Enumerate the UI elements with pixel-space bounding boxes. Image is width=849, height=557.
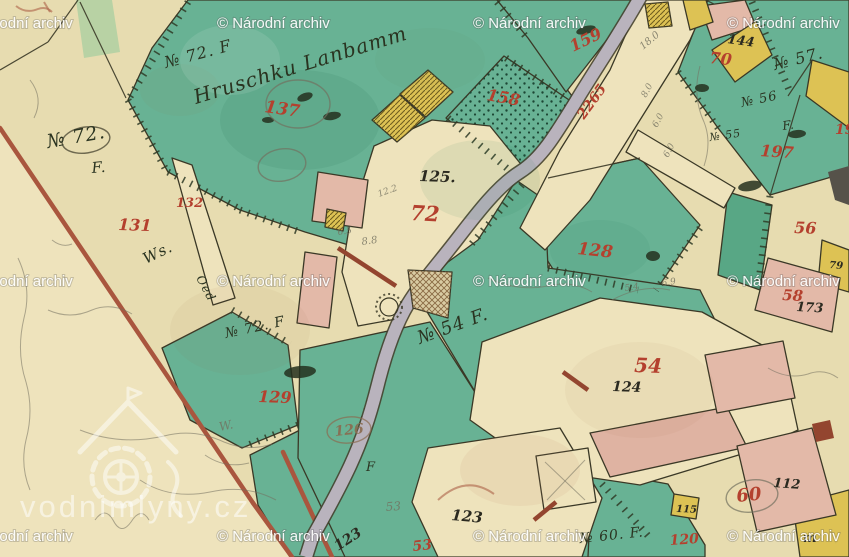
parcel-number-126: 126 [334, 421, 365, 440]
parcel-number-72: 72 [410, 200, 441, 226]
parcel-number-120: 120 [669, 531, 700, 549]
parcel-number-56: 56 [794, 218, 817, 238]
parcel-number-124: 124 [612, 379, 642, 396]
parcel-number-197: 197 [760, 141, 795, 162]
archive-watermark: © Národní archiv [217, 15, 330, 32]
parcel-number-60: 6.0 [651, 112, 667, 130]
tree-symbol [695, 84, 709, 92]
archive-watermark: © Národní archiv [473, 15, 586, 32]
archive-watermark: © Národní archiv [727, 15, 840, 32]
script-label-72: № 72. [44, 121, 107, 153]
script-label-Ws: Ws. [140, 238, 176, 268]
parcel-number-112: 112 [773, 476, 801, 493]
mill-logo-hub [116, 472, 126, 482]
parcel-number-173: 173 [796, 300, 824, 316]
script-label-F: F [365, 460, 376, 475]
parcel-number-19: 19 [835, 122, 849, 138]
parcel-number-131: 131 [118, 215, 152, 235]
archive-watermark: © Národní archiv [473, 528, 586, 545]
parcel-number-54: 54 [634, 353, 663, 378]
parcel-number-128: 128 [576, 239, 614, 263]
archive-watermark: © Národní archiv [0, 15, 73, 32]
script-label-F: F. [90, 158, 107, 177]
parcel-number-132: 132 [176, 196, 203, 211]
parcel-number-65: 6.5 [337, 226, 353, 238]
archive-watermark: © Národní archiv [727, 273, 840, 290]
parcel-number-79: 79 [829, 260, 844, 272]
tree-symbol [646, 251, 660, 261]
hatched-plot-pattern [408, 270, 452, 318]
archive-watermark: © Národní archiv [727, 528, 840, 545]
parcel-number-129: 129 [258, 387, 292, 407]
map-canvas[interactable]: 1371581592265707213113212812919719565854… [0, 0, 849, 557]
red-chalk-mark [44, 2, 50, 12]
dark-patch [828, 166, 849, 205]
paper-stain [460, 434, 580, 506]
parcel-number-69: 6.9 [661, 277, 677, 289]
parcel-number-W: W. [218, 417, 235, 434]
boundary-line [0, 42, 48, 70]
archive-watermark: © Národní archiv [217, 273, 330, 290]
archive-watermark: © Národní archiv [217, 528, 330, 545]
wall-red-square [812, 420, 834, 442]
parcel-number-115: 115 [676, 504, 697, 516]
cadastral-map-svg: 1371581592265707213113212812919719565854… [0, 0, 849, 557]
parcel-number-54: 5.4 [624, 282, 640, 294]
parcel-number-123: 123 [451, 506, 484, 527]
archive-watermark: © Národní archiv [0, 273, 73, 290]
archive-watermark: © Národní archiv [0, 528, 73, 545]
mill-watermark-text: vodnimlyny.cz [20, 489, 251, 524]
script-label-F: F. [780, 117, 795, 133]
archive-watermark: © Národní archiv [473, 273, 586, 290]
building-yellow-road-pattern [645, 2, 672, 28]
parcel-number-60: 60 [735, 483, 763, 507]
parcel-number-70: 70 [709, 48, 733, 69]
parcel-number-88: 8.8 [361, 235, 378, 248]
parcel-number-53: 53 [385, 499, 402, 514]
pencil-scribble [30, 80, 38, 118]
parcel-number-125: 125. [419, 167, 456, 186]
parcel-number-53: 53 [412, 537, 433, 555]
